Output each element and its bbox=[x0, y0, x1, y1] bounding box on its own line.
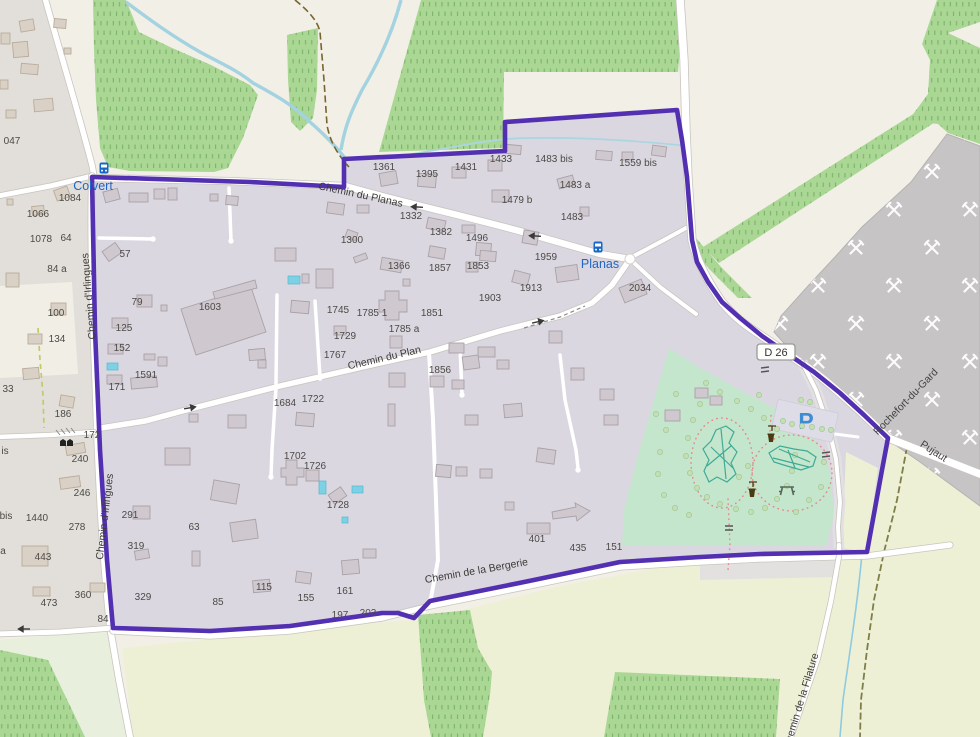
svg-text:1591: 1591 bbox=[135, 370, 158, 381]
svg-text:1084: 1084 bbox=[59, 193, 82, 204]
svg-text:1332: 1332 bbox=[400, 211, 423, 222]
svg-text:1785 1: 1785 1 bbox=[357, 308, 388, 319]
svg-text:100: 100 bbox=[48, 308, 65, 319]
svg-text:125: 125 bbox=[116, 323, 133, 334]
svg-text:85: 85 bbox=[212, 597, 224, 608]
svg-text:152: 152 bbox=[114, 343, 131, 354]
svg-text:186: 186 bbox=[55, 409, 72, 420]
svg-text:1382: 1382 bbox=[430, 227, 453, 238]
svg-text:1361: 1361 bbox=[373, 162, 396, 173]
svg-text:360: 360 bbox=[75, 590, 92, 601]
svg-text:240: 240 bbox=[72, 454, 89, 465]
svg-text:57: 57 bbox=[119, 249, 131, 260]
svg-text:047: 047 bbox=[4, 136, 21, 147]
svg-text:278: 278 bbox=[69, 522, 86, 533]
svg-text:151: 151 bbox=[606, 542, 623, 553]
svg-text:2034: 2034 bbox=[629, 283, 652, 294]
svg-text:443: 443 bbox=[35, 552, 52, 563]
svg-text:1857: 1857 bbox=[429, 263, 452, 274]
svg-text:1722: 1722 bbox=[302, 394, 325, 405]
svg-text:203: 203 bbox=[360, 608, 377, 619]
svg-text:1767: 1767 bbox=[324, 350, 347, 361]
svg-text:246: 246 bbox=[74, 488, 91, 499]
svg-text:1433: 1433 bbox=[490, 154, 513, 165]
svg-text:Colvert: Colvert bbox=[73, 179, 113, 193]
svg-text:1559 bis: 1559 bis bbox=[619, 158, 657, 169]
svg-text:1483 bis: 1483 bis bbox=[535, 154, 573, 165]
svg-text:1395: 1395 bbox=[416, 169, 439, 180]
svg-text:1851: 1851 bbox=[421, 308, 444, 319]
svg-text:1728: 1728 bbox=[327, 500, 350, 511]
svg-text:1684: 1684 bbox=[274, 398, 297, 409]
svg-text:1366: 1366 bbox=[388, 261, 411, 272]
svg-text:1959: 1959 bbox=[535, 252, 558, 263]
svg-text:1479 b: 1479 b bbox=[502, 195, 533, 206]
svg-text:79: 79 bbox=[131, 297, 143, 308]
svg-text:1066: 1066 bbox=[27, 209, 50, 220]
svg-text:329: 329 bbox=[135, 592, 152, 603]
svg-text:is: is bbox=[1, 446, 8, 457]
svg-text:P: P bbox=[798, 408, 813, 434]
svg-text:Planas: Planas bbox=[581, 257, 619, 271]
svg-text:84 a: 84 a bbox=[47, 264, 67, 275]
svg-text:a: a bbox=[0, 546, 6, 557]
svg-text:197: 197 bbox=[332, 610, 349, 621]
svg-text:291: 291 bbox=[122, 510, 139, 521]
svg-text:1785 a: 1785 a bbox=[389, 324, 420, 335]
svg-text:1726: 1726 bbox=[304, 461, 327, 472]
svg-text:134: 134 bbox=[49, 334, 66, 345]
svg-text:1496: 1496 bbox=[466, 233, 489, 244]
svg-text:1913: 1913 bbox=[520, 283, 543, 294]
svg-text:63: 63 bbox=[188, 522, 200, 533]
svg-text:1078: 1078 bbox=[30, 234, 53, 245]
svg-text:401: 401 bbox=[529, 534, 546, 545]
svg-text:319: 319 bbox=[128, 541, 145, 552]
svg-text:171: 171 bbox=[109, 382, 126, 393]
svg-text:1856: 1856 bbox=[429, 365, 452, 376]
svg-text:D 26: D 26 bbox=[764, 347, 787, 359]
svg-text:1745: 1745 bbox=[327, 305, 350, 316]
svg-text:1440: 1440 bbox=[26, 513, 49, 524]
svg-text:435: 435 bbox=[570, 543, 587, 554]
svg-text:155: 155 bbox=[298, 593, 315, 604]
svg-text:1431: 1431 bbox=[455, 162, 478, 173]
svg-text:161: 161 bbox=[337, 586, 354, 597]
svg-text:172: 172 bbox=[84, 430, 101, 441]
svg-text:1603: 1603 bbox=[199, 302, 222, 313]
svg-text:bis: bis bbox=[0, 511, 12, 522]
svg-text:473: 473 bbox=[41, 598, 58, 609]
svg-text:1853: 1853 bbox=[467, 261, 490, 272]
svg-text:1483: 1483 bbox=[561, 212, 584, 223]
svg-text:1729: 1729 bbox=[334, 331, 357, 342]
svg-text:1483 a: 1483 a bbox=[560, 180, 591, 191]
svg-text:33: 33 bbox=[2, 384, 14, 395]
svg-text:1300: 1300 bbox=[341, 235, 364, 246]
svg-text:115: 115 bbox=[256, 582, 272, 593]
svg-text:1903: 1903 bbox=[479, 293, 502, 304]
svg-text:84: 84 bbox=[97, 614, 109, 625]
svg-text:64: 64 bbox=[60, 233, 72, 244]
